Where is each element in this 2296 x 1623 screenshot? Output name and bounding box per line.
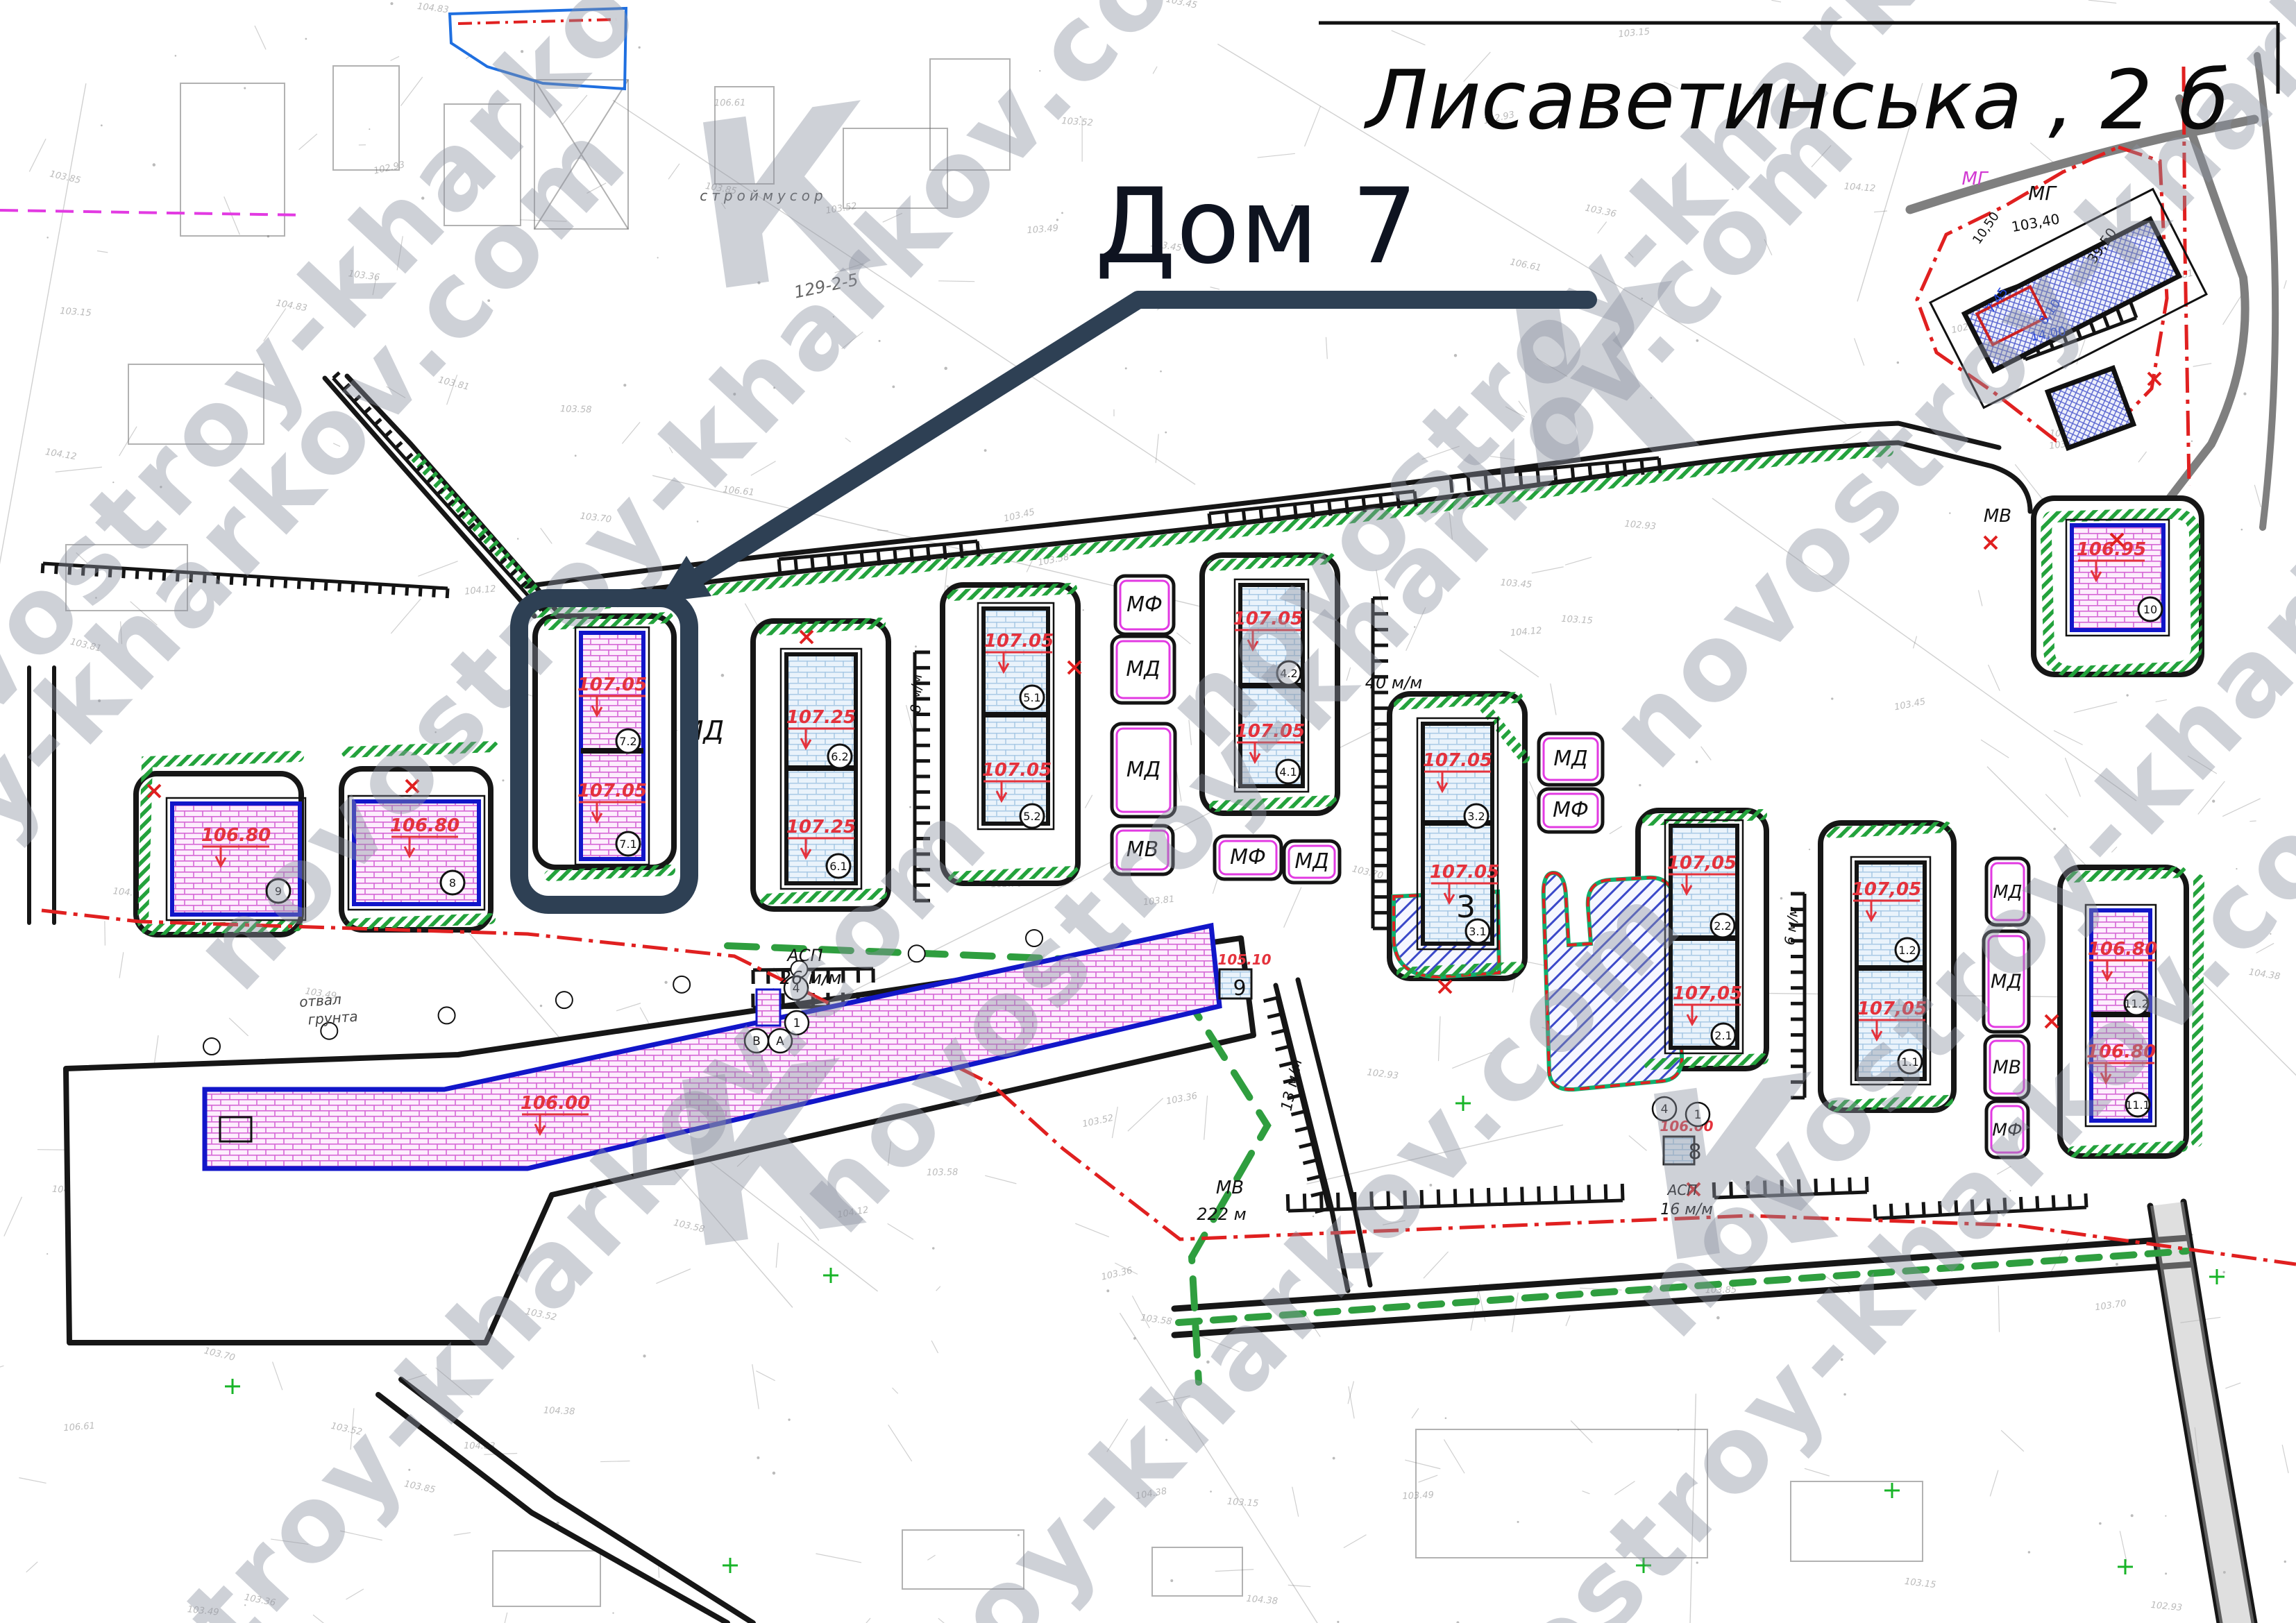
topo-dot [47,1253,48,1255]
topo-dot [1445,1417,1447,1419]
topo-line [154,1035,158,1067]
topo-dot [2191,441,2193,442]
topo-line [1405,1460,1440,1469]
topo-dot [1083,609,1084,611]
section-number: 6.2 [831,750,848,763]
topo-line [19,1478,46,1484]
topo-line [1284,887,1301,927]
topo-dot [244,87,246,89]
elevation-label: 107.05 [577,674,647,695]
topo-line [985,1175,1016,1184]
topo-dot [2165,1572,2167,1574]
topo-line [756,1371,775,1381]
topo-dot [788,1418,790,1420]
topo-dot [2284,1561,2286,1563]
green-band [1831,827,1946,833]
topo-line [1156,434,1158,463]
elevation-label: 107.25 [786,707,856,728]
topo-dot [773,1472,775,1475]
topo-dot [2222,1271,2225,1273]
topo-line [2254,485,2261,507]
topo-line [1500,649,1539,677]
topo-line [119,952,124,978]
topo-dot [623,384,626,386]
topo-dot [2028,1551,2030,1553]
axis-circle-empty [673,976,690,993]
old-building-outline [493,1551,600,1606]
topo-elevation: 103.49 [1027,223,1059,237]
topo-line [2138,452,2147,462]
topo-dot [612,1612,614,1613]
topo-dot [721,674,725,677]
topo-line [0,1366,3,1379]
red-x-mark [1439,980,1451,993]
topo-line [600,1461,630,1461]
topo-dot [1133,1337,1136,1340]
elevation-label: 107.05 [1423,750,1492,771]
topo-line [1204,1096,1208,1140]
topo-dot [944,367,947,370]
topo-dot [47,237,48,238]
elevation-label: 106.95 [2077,539,2146,560]
topo-dot [1517,1521,1519,1523]
green-band [1399,697,1517,704]
topo-elevation: 103.52 [1081,1113,1115,1130]
topo-dot [1949,512,1950,513]
street-surface [2150,1202,2254,1623]
dom7-annotation-text: Дом 7 [1095,167,1417,287]
topo-line [2120,1531,2127,1561]
topo-line [1392,31,1426,45]
topo-line [1551,683,1556,715]
topo-line [1210,287,1219,289]
topo-dot [1106,1289,1109,1292]
topo-elevation: 103.36 [1165,1091,1199,1107]
topo-line [1128,1098,1163,1131]
building-7: 107.05107.057.27.1 [575,627,649,865]
topo-line [1998,1286,1999,1332]
green-band [1402,967,1519,973]
topo-line [418,561,457,577]
topo-line [1981,740,2009,758]
topo-dot [369,128,370,130]
section-number: 8 [449,876,456,890]
topo-dot [1160,371,1162,373]
building-number: 3 [1456,890,1476,925]
map-text-label: МГ [1962,169,1989,189]
topo-line [2282,1445,2288,1473]
topo-line [496,1613,507,1623]
topo-line [1771,0,1781,2]
topo-line [888,1223,913,1239]
topo-line [888,1425,912,1461]
map-text-label: отвал [298,991,341,1010]
topo-line [454,1533,471,1536]
green-band [763,623,880,630]
topo-line [346,1589,364,1599]
service-block-label: МФ [1126,593,1163,617]
topo-line [4,1197,22,1237]
service-block-label: МФ [1553,798,1589,822]
map-text-label: 8 м/м [907,674,925,713]
section-number: 3.2 [1467,810,1485,823]
site-plan-svg: 103.52103.81103.70104.83103.36103.45102.… [0,0,2296,1623]
elevation-label: 106.00 [521,1093,590,1114]
elevation-label: 107,05 [1673,983,1742,1004]
topo-dot [2126,694,2128,696]
topo-dot [1061,212,1063,214]
topo-elevation: 104.38 [543,1405,575,1417]
topo-dot [1165,432,1167,434]
topo-line [1874,211,1887,212]
topo-dot [502,779,504,781]
topo-elevation: 103.15 [60,306,92,318]
topo-elevation: 103.58 [1140,1313,1172,1327]
elevation-label: 107.05 [984,631,1054,652]
topo-dot [1809,849,1810,850]
topo-dot [1056,219,1058,221]
topo-dot [2241,529,2243,531]
topo-line [1610,826,1622,834]
elevation-label: 107.05 [982,760,1052,781]
map-text-label: 10,50 [1970,210,2002,247]
topo-line [2088,0,2116,3]
topo-elevation: 103.70 [2094,1298,2127,1313]
topo-line [938,281,974,282]
topo-dot [1639,784,1641,786]
topo-line [1085,795,1092,808]
topo-dot [657,257,659,258]
watermark-logo: К [655,1012,878,1302]
topo-line [391,599,421,634]
green-band [550,870,670,876]
topo-dot [153,163,156,167]
topo-line [2223,294,2243,325]
topo-line [1855,338,1864,365]
topo-dot [1831,697,1833,699]
service-block-label: МД [1553,747,1587,771]
topo-line [1419,1475,1438,1482]
topo-line [2054,731,2083,745]
map-text-label: 222 м [1197,1205,1247,1224]
topo-line [845,438,851,442]
topo-dot [575,454,577,457]
topo-dot [757,1456,759,1459]
elevation-label: 107.05 [577,781,647,801]
topo-elevation: 104.38 [1246,1594,1278,1607]
topo-dot [1897,362,1899,364]
topo-line [1412,1409,1419,1418]
topo-dot [984,449,987,452]
topo-dot [664,981,667,984]
topo-dot [1333,1457,1335,1460]
topo-line [1805,1468,1830,1476]
topo-elevation: 103.85 [49,169,82,187]
topo-line [877,530,888,531]
map-title: Лисаветинська , 2 б [1363,52,2229,148]
topo-line [2074,702,2117,713]
section-number: 10 [2143,603,2157,616]
topo-elevation: 103.15 [1226,1497,1258,1509]
green-band [348,919,490,924]
topo-line [1565,557,1592,565]
green-cross [1884,1483,1900,1498]
topo-elevation: 103.15 [1618,26,1651,40]
topo-elevation: 104.12 [1510,626,1542,639]
topo-line [1075,1223,1109,1237]
topo-dot [643,1354,645,1357]
green-cross [225,1379,240,1394]
map-text-label: МВ [1216,1178,1244,1198]
elevation-label: 107,05 [1852,879,1921,900]
topo-line [299,134,317,150]
topo-line [1344,1535,1367,1548]
topo-line [1258,153,1295,158]
section-number: 7.2 [619,735,636,748]
topo-elevation: 103.49 [1402,1490,1434,1502]
topo-dot [892,385,895,388]
site-plan: 103.52103.81103.70104.83103.36103.45102.… [0,0,2296,1623]
topo-line [1153,67,1157,74]
topo-line [616,1003,641,1011]
topo-line [1288,1585,1311,1586]
section-number: 3.1 [1469,925,1486,938]
section-number: 5.2 [1023,810,1040,823]
green-cross [2209,1269,2225,1284]
old-building-outline [1152,1547,1242,1596]
topo-dot [2131,1514,2134,1517]
topo-dot [1780,897,1783,900]
topo-dot [1170,1579,1173,1582]
topo-dot [390,2,393,5]
topo-line [1215,1570,1253,1572]
topo-elevation: 103.36 [1100,1266,1133,1283]
old-building-outline [1791,1481,1923,1561]
elevation-label: 107.25 [786,817,856,838]
substation-number: 9 [1233,976,1246,1001]
topo-elevation: 104.12 [44,447,77,462]
topo-line [1424,1252,1449,1278]
topo-dot [2099,1522,2102,1525]
topo-line [640,1008,650,1026]
topo-line [854,1618,870,1623]
building-3: 107.05107.053.23.13 [1417,718,1499,949]
topo-line [273,1362,282,1391]
topo-line [26,1562,37,1572]
axis-circle-empty [439,1007,455,1023]
topo-elevation: 103.15 [1904,1577,1936,1590]
green-cross [2118,1559,2133,1574]
watermark-logo: К [1627,1026,1850,1316]
red-x-mark [1984,536,1997,549]
map-text-label: МВ [1984,506,2011,527]
axis-circle-empty [556,992,573,1008]
topo-dot [305,38,307,40]
topo-line [752,1364,759,1409]
topo-line [401,77,423,105]
topo-dot [1210,1490,1212,1493]
topo-line [1582,1491,1590,1494]
topo-line [816,1554,861,1563]
topo-line [105,921,105,945]
topo-line [931,1341,938,1353]
topo-elevation: 102.93 [2150,1600,2183,1613]
topo-elevation: 103.45 [1500,577,1532,590]
topo-line [668,164,679,179]
axis-circle-empty [203,1038,220,1055]
topo-dot [2116,1263,2118,1266]
topo-dot [1125,367,1127,369]
topo-line [313,1615,333,1623]
topo-line [1532,567,1564,573]
elevation-label: 107.05 [1430,862,1499,883]
topo-line [29,139,46,171]
elevation-label: 107,05 [1667,853,1737,874]
topo-elevation: 104.83 [416,1,449,15]
topo-line [1566,1316,1570,1326]
topo-line [255,26,266,49]
green-cross [723,1558,738,1573]
building-10: 106.9510 [2066,520,2169,636]
topo-line [2001,1430,2024,1451]
topo-dot [915,645,917,647]
building-5: 107.05107.055.15.2 [978,603,1054,829]
topo-elevation: 103.58 [560,404,592,415]
substation-elevation: 105.10 [1217,951,1271,968]
topo-line [927,1555,935,1560]
topo-line [1978,590,1982,606]
topo-elevation: 102.93 [1367,1067,1399,1081]
topo-elevation: 103.45 [1003,507,1036,525]
topo-elevation: 106.61 [63,1421,96,1434]
map-text-label: МГ [2028,182,2057,205]
topo-elevation: 102.93 [1624,519,1657,532]
watermark-logo: К [676,54,899,344]
topo-line [2225,1383,2240,1388]
topo-line [1990,1470,1998,1497]
topo-line [224,196,240,235]
topo-line [892,1388,897,1393]
topo-dot [932,1247,934,1249]
magenta-boundary [0,210,304,215]
topo-dot [101,124,103,126]
map-text-label: грунта [307,1008,359,1028]
watermark-logo: К [1488,235,1711,525]
topo-line [1444,1439,1464,1473]
topo-line [97,251,108,253]
topo-line [1305,106,1321,146]
topo-dot [175,55,177,57]
building-6: 107.25107.256.26.1 [781,649,861,889]
section-number: 7.1 [619,838,636,851]
topo-line [1326,337,1327,359]
topo-line [1989,665,2000,691]
topo-line [2284,280,2287,289]
topo-line [391,56,400,60]
topo-line [1292,1487,1299,1517]
service-block-label: МД [1294,849,1328,874]
topo-dot [540,1005,542,1007]
topo-line [2193,364,2212,367]
topo-elevation: 103.15 [1561,614,1593,627]
topo-dot [2243,393,2246,396]
topo-line [1571,1420,1592,1443]
section-number: 2.2 [1714,919,1731,933]
topo-dot [517,538,518,539]
section-number: 5.1 [1023,691,1040,704]
topo-line [936,1286,940,1291]
topo-line [229,1018,248,1036]
green-band [952,588,1072,595]
topo-elevation: 103.70 [203,1345,236,1363]
topo-dot [2165,1515,2166,1517]
topo-elevation: 103.45 [1893,697,1927,713]
topo-line [656,1269,691,1284]
